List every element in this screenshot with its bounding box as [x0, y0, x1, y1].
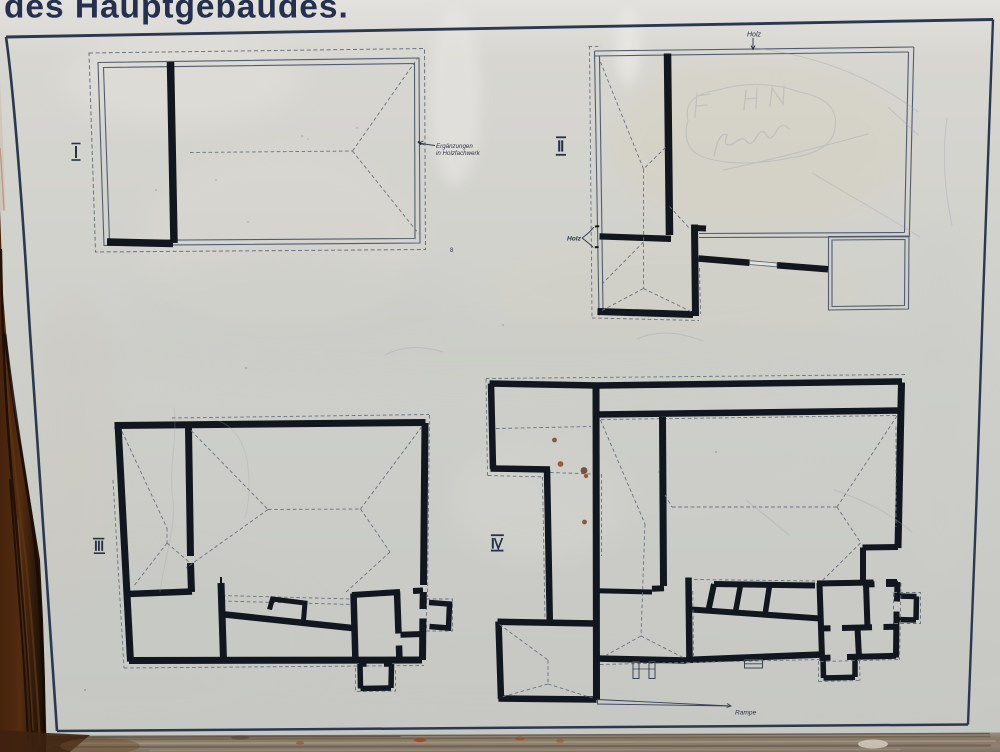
svg-text:Holz: Holz — [567, 236, 582, 243]
svg-text:Holz: Holz — [747, 32, 762, 39]
svg-text:in Holzfachwerk: in Holzfachwerk — [436, 150, 481, 157]
svg-text:des Hauptgebäudes.: des Hauptgebäudes. — [4, 0, 349, 26]
svg-text:Ergänzungen: Ergänzungen — [436, 143, 473, 150]
svg-text:Rampe: Rampe — [735, 710, 757, 717]
